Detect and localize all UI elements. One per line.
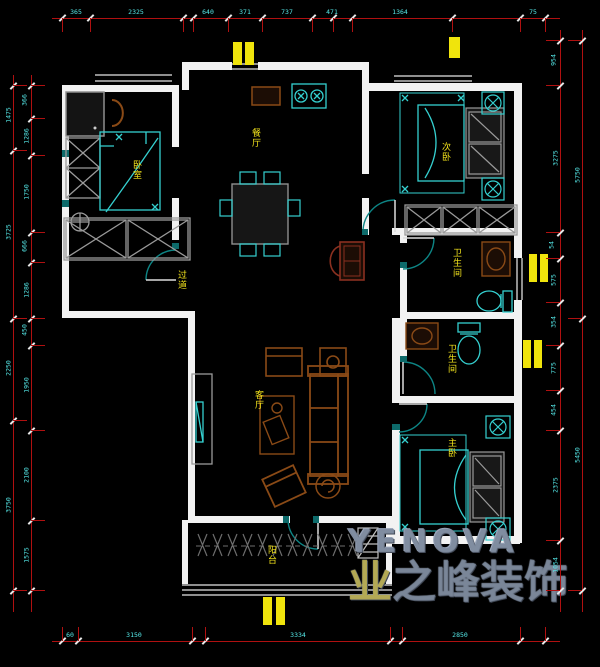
wardrobe-icon <box>64 218 190 260</box>
dimension-line-right-inner <box>560 30 561 612</box>
dimension-label: 2850 <box>452 632 468 639</box>
dimension-extension <box>78 627 79 641</box>
dimension-label: 5450 <box>574 447 581 463</box>
dimension-extension <box>13 590 27 591</box>
dimension-label: 1750 <box>23 184 30 200</box>
dimension-extension <box>192 627 193 641</box>
ladder-icon <box>358 528 378 558</box>
dimension-label: 3334 <box>290 632 306 639</box>
dimension-extension <box>568 590 582 591</box>
dimension-label: 2325 <box>128 9 144 16</box>
sofa-icon <box>308 366 348 484</box>
stove-icon <box>292 84 326 108</box>
door-arc-icon <box>403 362 435 394</box>
headboard-icon <box>466 108 504 178</box>
dimension-label: 3750 <box>5 497 12 513</box>
dimension-extension <box>90 18 91 32</box>
armchair-icon <box>262 465 305 507</box>
entry-cabinet-icon <box>330 242 364 280</box>
dimension-label: 1286 <box>23 128 30 144</box>
side-cabinet-icon <box>320 348 346 376</box>
dimension-label: 75 <box>529 9 537 16</box>
dimension-extension <box>546 85 560 86</box>
room-label-bathroom-2: 卫生间 <box>446 344 456 374</box>
dimension-label: 954 <box>550 54 557 66</box>
balcony-items <box>196 528 378 558</box>
radiator-icon <box>263 597 272 625</box>
dimension-extension <box>520 18 521 32</box>
radiator-icon <box>276 597 285 625</box>
dimension-label: 737 <box>281 9 293 16</box>
dimension-extension <box>545 627 546 641</box>
living-furniture <box>192 348 348 507</box>
dimension-extension <box>31 430 45 431</box>
dimension-line-bottom <box>52 641 560 642</box>
room-label-bathroom-1: 卫生间 <box>451 248 461 278</box>
dimension-extension <box>312 18 313 32</box>
dimension-label: 60 <box>66 632 74 639</box>
room-label-bedroom-top-right: 次卧 <box>440 142 450 162</box>
dimension-extension <box>262 18 263 32</box>
dimension-label: 54 <box>548 241 555 249</box>
dimension-label: 3275 <box>552 150 559 166</box>
dimension-extension <box>31 85 45 86</box>
room-label-hallway: 过道 <box>176 270 186 290</box>
bedroom-bottom-right-furniture <box>400 416 510 540</box>
dimension-extension <box>31 232 45 233</box>
dimension-label: 2100 <box>23 467 30 483</box>
dimension-label: 5750 <box>574 167 581 183</box>
dimension-extension <box>452 18 453 32</box>
bathroom-1-fixtures <box>477 242 512 312</box>
radiator-icon <box>233 42 242 65</box>
radiator-icon <box>534 340 542 368</box>
dimension-extension <box>183 18 184 32</box>
dimension-extension <box>568 40 582 41</box>
sink-icon <box>406 323 438 349</box>
bed-icon <box>402 437 468 530</box>
tv-icon <box>196 402 203 442</box>
dimension-label: 1054 <box>552 557 559 573</box>
dimension-extension <box>193 18 194 32</box>
door-arc-icon <box>403 238 434 269</box>
room-label-dining: 餐厅 <box>250 128 260 148</box>
dimension-extension <box>520 627 521 641</box>
dimension-extension <box>546 40 560 41</box>
dimension-extension <box>546 258 560 259</box>
loveseat-icon <box>266 348 302 376</box>
coffee-table-icon <box>260 396 294 454</box>
dimension-extension <box>546 430 560 431</box>
dimension-label: 1475 <box>5 107 12 123</box>
dimension-extension <box>31 155 45 156</box>
dimension-label: 1575 <box>23 547 30 563</box>
bed-icon <box>402 95 464 192</box>
dimension-extension <box>546 345 560 346</box>
dimension-line-right-outer <box>582 30 583 612</box>
dimension-label: 365 <box>70 9 82 16</box>
bedroom-left-furniture <box>64 92 190 260</box>
headboard-icon <box>470 452 504 522</box>
dining-table-icon <box>232 184 288 244</box>
kitchen-counter-icon <box>252 87 280 105</box>
rug-frame <box>400 93 464 193</box>
dimension-extension <box>62 18 63 32</box>
dimension-extension <box>205 627 206 641</box>
dimension-label: 640 <box>202 9 214 16</box>
dimension-label: 1286 <box>23 282 30 298</box>
dimension-extension <box>31 118 45 119</box>
dimension-extension <box>546 232 560 233</box>
bathroom-2-fixtures <box>406 323 480 364</box>
dimension-extension <box>31 345 45 346</box>
dimension-extension <box>13 318 27 319</box>
dimension-extension <box>13 85 27 86</box>
dimension-extension <box>31 262 45 263</box>
dimension-label: 450 <box>21 324 28 336</box>
dimension-extension <box>546 302 560 303</box>
dimension-label: 354 <box>550 316 557 328</box>
wardrobe-icon <box>66 138 100 198</box>
floor-plan-canvas: YENOVA 业之峰装饰 卧室餐厅次卧卫生间卫生间过道客厅主卧阳台3652325… <box>0 0 600 667</box>
door-arc-icon <box>146 250 176 280</box>
toilet-icon <box>477 291 512 312</box>
dimension-line-left-outer <box>13 75 14 612</box>
dimension-label: 471 <box>326 9 338 16</box>
door-arc-icon <box>399 404 427 432</box>
bed-icon <box>100 132 160 212</box>
dimension-label: 2250 <box>5 360 12 376</box>
dimension-label: 366 <box>21 94 28 106</box>
dimension-label: 775 <box>550 362 557 374</box>
room-label-bedroom-left: 卧室 <box>131 160 141 180</box>
radiator-icon <box>245 42 254 65</box>
dimension-label: 371 <box>239 9 251 16</box>
dimension-label: 1364 <box>392 9 408 16</box>
window-bands <box>95 63 523 596</box>
dimension-extension <box>390 627 391 641</box>
dressing-chair-icon <box>112 100 123 126</box>
plants-icon <box>198 534 357 556</box>
dimension-label: 575 <box>550 274 557 286</box>
room-label-bedroom-bottom-right: 主卧 <box>446 438 456 458</box>
dimension-label: 454 <box>550 404 557 416</box>
sink-icon <box>482 242 510 276</box>
dimension-extension <box>228 18 229 32</box>
dimension-extension <box>352 18 353 32</box>
dimension-label: 1950 <box>23 377 30 393</box>
dimension-label: 3725 <box>5 224 12 240</box>
dimension-extension <box>31 318 45 319</box>
radiator-icon <box>529 254 537 282</box>
room-label-living: 客厅 <box>253 390 263 410</box>
radiator-icon <box>523 340 531 368</box>
walls <box>62 62 522 586</box>
dining-furniture <box>220 84 326 256</box>
dimension-label: 666 <box>21 240 28 252</box>
toilet-icon <box>458 323 480 364</box>
radiator-icon <box>449 37 460 58</box>
dimension-extension <box>31 590 45 591</box>
round-table-icon <box>316 474 340 498</box>
dimension-extension <box>13 420 27 421</box>
dimension-extension <box>546 590 560 591</box>
dimension-extension <box>333 18 334 32</box>
cabinet-icon <box>66 92 104 136</box>
dimension-extension <box>402 627 403 641</box>
dimension-extension <box>546 390 560 391</box>
room-label-balcony: 阳台 <box>266 545 276 565</box>
dimension-extension <box>545 18 546 32</box>
dimension-extension <box>546 540 560 541</box>
dimension-extension <box>62 627 63 641</box>
floor-plan-drawing <box>0 0 600 667</box>
dimension-line-top <box>52 18 560 19</box>
bedroom-top-right-furniture <box>400 92 517 235</box>
dimension-label: 2375 <box>552 477 559 493</box>
dimension-label: 3150 <box>126 632 142 639</box>
dimension-extension <box>13 150 27 151</box>
dimension-extension <box>31 520 45 521</box>
dimension-extension <box>568 318 582 319</box>
